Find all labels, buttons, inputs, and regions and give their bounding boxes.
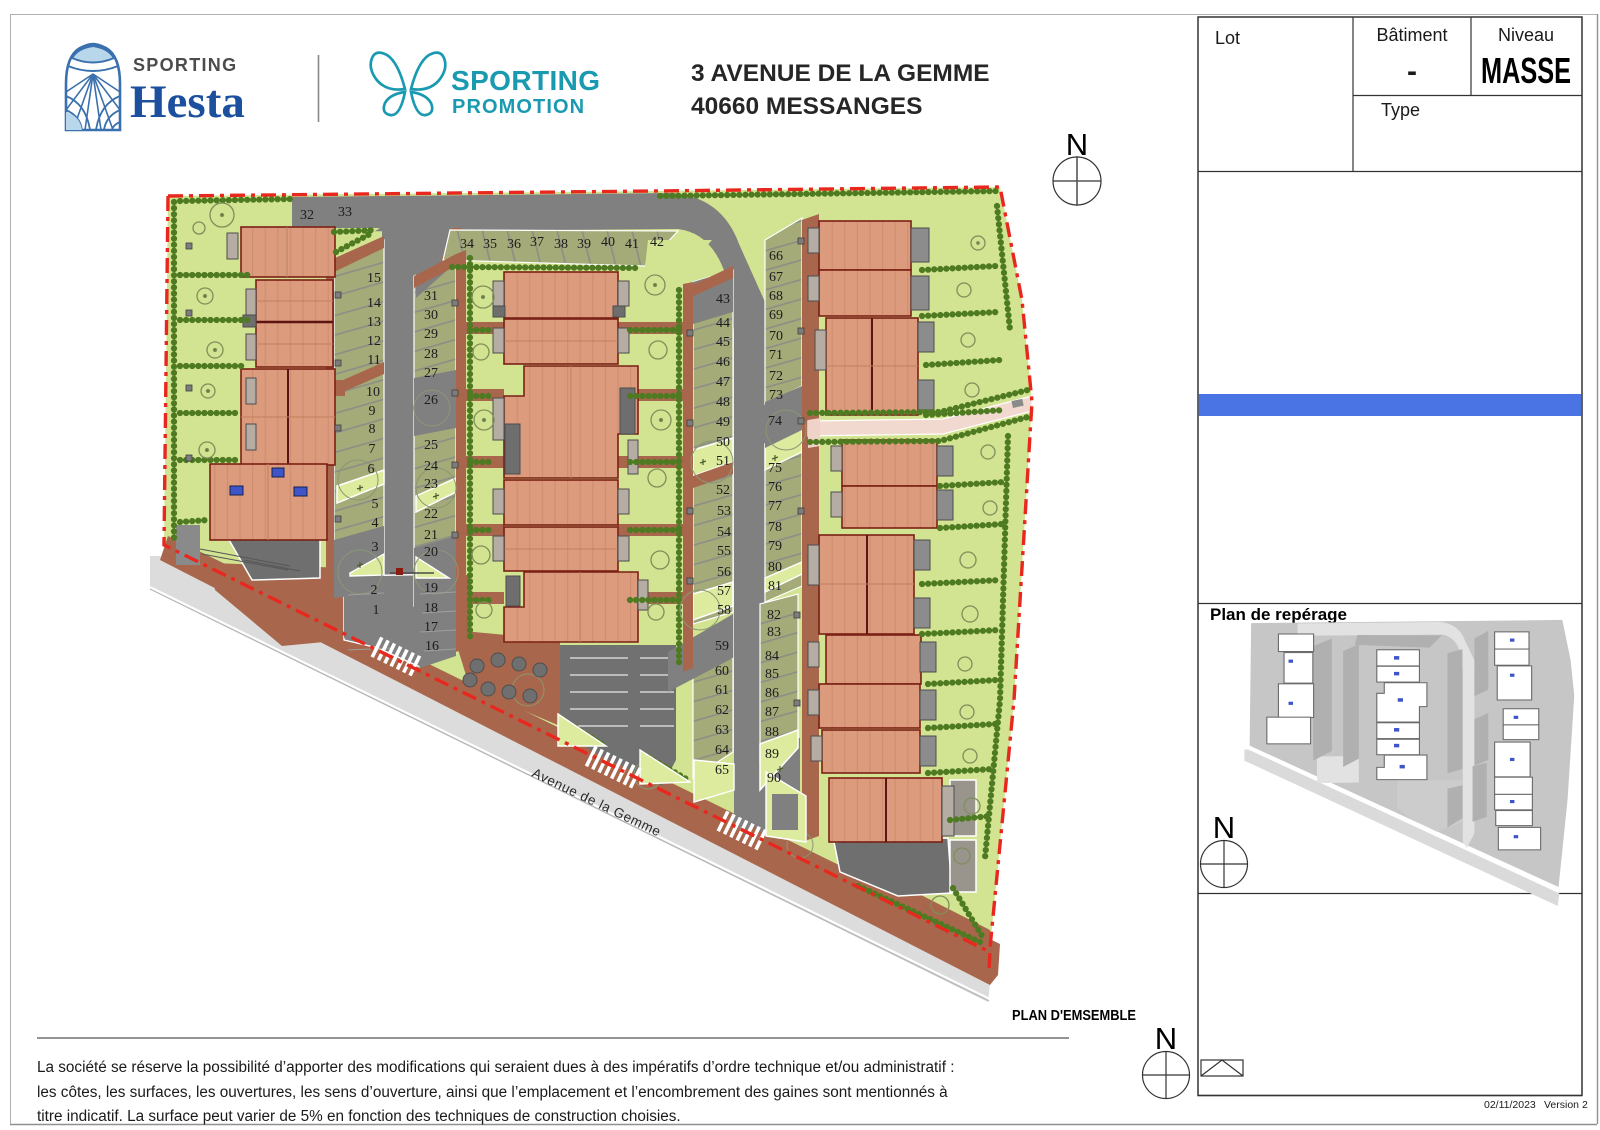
svg-text:37: 37 xyxy=(530,235,544,250)
svg-text:25: 25 xyxy=(424,438,438,453)
svg-text:39: 39 xyxy=(577,237,591,252)
svg-text:N: N xyxy=(1155,1021,1177,1056)
svg-text:31: 31 xyxy=(424,289,438,304)
svg-text:2: 2 xyxy=(371,583,378,598)
svg-text:16: 16 xyxy=(425,639,439,654)
svg-text:68: 68 xyxy=(769,289,783,304)
svg-text:21: 21 xyxy=(424,528,438,543)
svg-text:75: 75 xyxy=(768,461,782,476)
svg-text:3: 3 xyxy=(372,540,379,555)
svg-text:71: 71 xyxy=(769,348,783,363)
svg-text:77: 77 xyxy=(768,499,782,514)
svg-text:52: 52 xyxy=(716,483,730,498)
svg-text:45: 45 xyxy=(716,335,730,350)
svg-text:9: 9 xyxy=(369,404,376,419)
svg-text:84: 84 xyxy=(765,649,779,664)
svg-text:24: 24 xyxy=(424,459,438,474)
svg-text:23: 23 xyxy=(424,477,438,492)
svg-text:les côtes, les surfaces, les o: les côtes, les surfaces, les ouvertures,… xyxy=(37,1084,948,1101)
svg-text:32: 32 xyxy=(300,208,314,223)
svg-text:17: 17 xyxy=(424,620,438,635)
svg-text:51: 51 xyxy=(716,454,730,469)
svg-text:64: 64 xyxy=(715,743,729,758)
svg-text:34: 34 xyxy=(460,237,474,252)
svg-text:41: 41 xyxy=(625,237,639,252)
svg-text:-: - xyxy=(1407,55,1417,88)
svg-text:Plan de repérage: Plan de repérage xyxy=(1210,605,1347,624)
svg-text:46: 46 xyxy=(716,355,730,370)
svg-text:20: 20 xyxy=(424,545,438,560)
svg-text:56: 56 xyxy=(717,565,731,580)
svg-text:67: 67 xyxy=(769,270,783,285)
svg-text:titre indicatif. La surface pe: titre indicatif. La surface peut varier … xyxy=(37,1108,681,1125)
svg-text:87: 87 xyxy=(765,705,779,720)
svg-text:PROMOTION: PROMOTION xyxy=(452,96,585,118)
svg-text:26: 26 xyxy=(424,393,438,408)
svg-text:02/11/2023: 02/11/2023 xyxy=(1484,1099,1536,1111)
svg-text:42: 42 xyxy=(650,235,664,250)
svg-text:73: 73 xyxy=(769,388,783,403)
svg-text:83: 83 xyxy=(767,625,781,640)
svg-text:14: 14 xyxy=(367,296,381,311)
svg-text:47: 47 xyxy=(716,375,730,390)
svg-text:78: 78 xyxy=(768,520,782,535)
svg-text:40660 MESSANGES: 40660 MESSANGES xyxy=(691,93,923,120)
svg-text:50: 50 xyxy=(716,435,730,450)
svg-text:18: 18 xyxy=(424,601,438,616)
svg-text:61: 61 xyxy=(715,683,729,698)
svg-text:65: 65 xyxy=(715,763,729,778)
svg-text:11: 11 xyxy=(367,353,380,368)
svg-text:Hesta: Hesta xyxy=(130,76,245,128)
svg-text:SPORTING: SPORTING xyxy=(451,65,600,96)
svg-text:76: 76 xyxy=(768,480,782,495)
svg-text:49: 49 xyxy=(716,415,730,430)
svg-text:88: 88 xyxy=(765,725,779,740)
svg-text:89: 89 xyxy=(765,747,779,762)
svg-text:82: 82 xyxy=(767,608,781,623)
svg-text:Niveau: Niveau xyxy=(1498,25,1554,45)
svg-text:80: 80 xyxy=(768,560,782,575)
svg-text:90: 90 xyxy=(767,771,781,786)
svg-text:28: 28 xyxy=(424,347,438,362)
svg-text:79: 79 xyxy=(768,539,782,554)
svg-text:81: 81 xyxy=(768,579,782,594)
svg-text:10: 10 xyxy=(366,385,380,400)
svg-text:13: 13 xyxy=(367,315,381,330)
svg-text:MASSE: MASSE xyxy=(1481,50,1571,91)
svg-text:22: 22 xyxy=(424,507,438,522)
svg-text:59: 59 xyxy=(715,639,729,654)
svg-text:57: 57 xyxy=(717,584,731,599)
svg-text:Version 2: Version 2 xyxy=(1544,1099,1588,1111)
svg-text:74: 74 xyxy=(768,414,782,429)
svg-text:62: 62 xyxy=(715,703,729,718)
svg-text:69: 69 xyxy=(769,308,783,323)
svg-text:15: 15 xyxy=(367,271,381,286)
svg-text:SPORTING: SPORTING xyxy=(133,55,237,75)
svg-text:72: 72 xyxy=(769,369,783,384)
svg-text:6: 6 xyxy=(368,462,375,477)
svg-text:1: 1 xyxy=(373,603,380,618)
svg-text:85: 85 xyxy=(765,667,779,682)
svg-text:35: 35 xyxy=(483,237,497,252)
svg-text:8: 8 xyxy=(369,422,376,437)
svg-text:54: 54 xyxy=(717,525,731,540)
svg-text:44: 44 xyxy=(716,316,730,331)
svg-text:66: 66 xyxy=(769,249,783,264)
svg-text:12: 12 xyxy=(367,334,381,349)
svg-text:40: 40 xyxy=(601,235,615,250)
svg-text:PLAN D'EMSEMBLE: PLAN D'EMSEMBLE xyxy=(1012,1008,1136,1024)
svg-text:86: 86 xyxy=(765,686,779,701)
svg-text:36: 36 xyxy=(507,237,521,252)
svg-text:70: 70 xyxy=(769,329,783,344)
svg-text:19: 19 xyxy=(424,581,438,596)
svg-text:5: 5 xyxy=(372,497,379,512)
svg-text:58: 58 xyxy=(717,603,731,618)
svg-text:63: 63 xyxy=(715,723,729,738)
svg-text:60: 60 xyxy=(715,664,729,679)
svg-text:38: 38 xyxy=(554,237,568,252)
svg-text:29: 29 xyxy=(424,327,438,342)
svg-text:N: N xyxy=(1213,810,1235,845)
svg-text:Bâtiment: Bâtiment xyxy=(1376,25,1447,45)
svg-text:30: 30 xyxy=(424,308,438,323)
svg-text:Type: Type xyxy=(1381,100,1420,120)
svg-text:7: 7 xyxy=(369,442,376,457)
svg-text:55: 55 xyxy=(717,544,731,559)
svg-text:53: 53 xyxy=(717,504,731,519)
svg-text:4: 4 xyxy=(372,516,379,531)
svg-text:3 AVENUE DE LA GEMME: 3 AVENUE DE LA GEMME xyxy=(691,60,990,87)
svg-text:27: 27 xyxy=(424,366,438,381)
svg-text:Lot: Lot xyxy=(1215,28,1240,48)
svg-text:43: 43 xyxy=(716,292,730,307)
svg-text:La société se réserve la possi: La société se réserve la possibilité d’a… xyxy=(37,1059,954,1076)
svg-text:33: 33 xyxy=(338,205,352,220)
svg-text:48: 48 xyxy=(716,395,730,410)
